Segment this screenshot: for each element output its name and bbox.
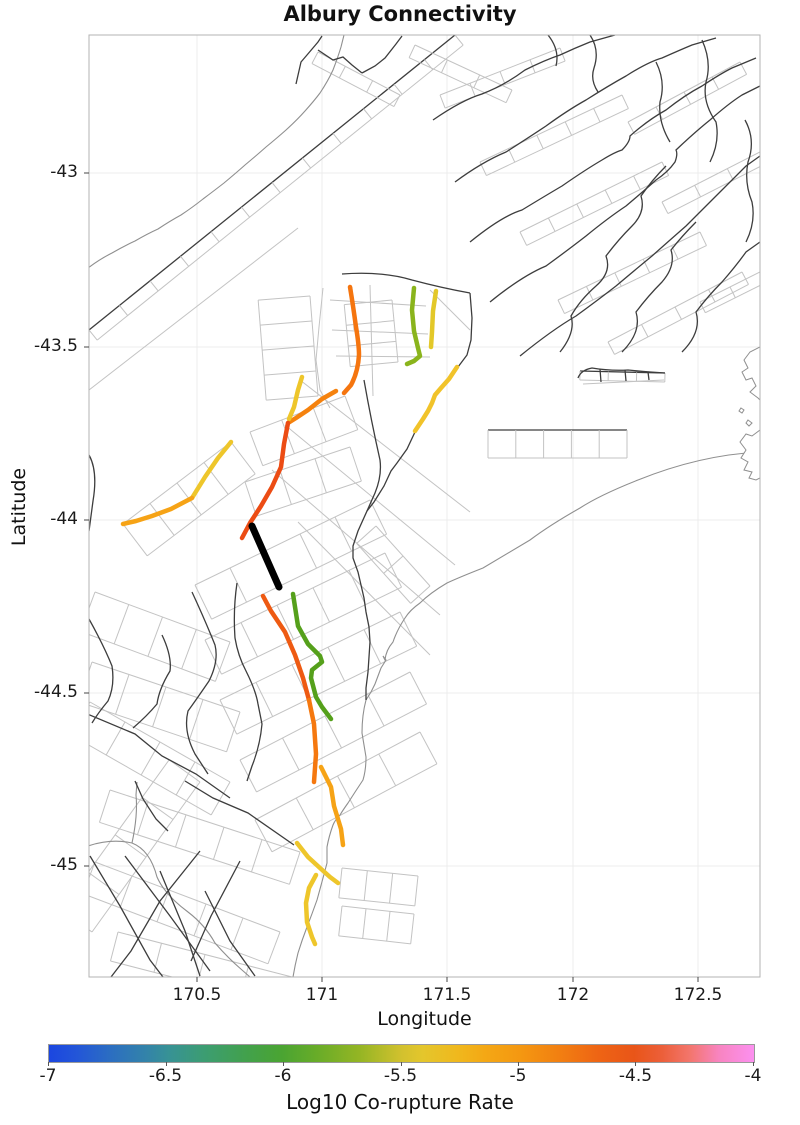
colorbar-tick-mark	[48, 1062, 49, 1066]
y-tick-label: -44.5	[14, 682, 78, 702]
y-tick-label: -43	[14, 162, 78, 182]
colorbar-tick-mark	[283, 1062, 284, 1066]
x-tick-label: 170.5	[162, 985, 232, 1005]
y-tick-label: -45	[14, 855, 78, 875]
colorbar-tick-mark	[753, 1062, 754, 1066]
colorbar-tick-mark	[635, 1062, 636, 1066]
x-tick-label: 171.5	[412, 985, 482, 1005]
x-tick-label: 172	[538, 985, 608, 1005]
colorbar-tick-label: -5.5	[371, 1066, 431, 1086]
colorbar-tick-label: -4.5	[605, 1066, 665, 1086]
colorbar-tick-label: -7	[18, 1066, 78, 1086]
y-tick-label: -43.5	[14, 336, 78, 356]
colorbar-tick-label: -6.5	[136, 1066, 196, 1086]
colorbar	[48, 1044, 755, 1063]
colorbar-tick-mark	[518, 1062, 519, 1066]
colorbar-label: Log10 Co-rupture Rate	[0, 1090, 800, 1114]
map-plot	[0, 0, 800, 1125]
chart-title: Albury Connectivity	[0, 2, 800, 26]
colorbar-tick-label: -6	[253, 1066, 313, 1086]
colorbar-tick-mark	[166, 1062, 167, 1066]
y-tick-label: -44	[14, 509, 78, 529]
colorbar-tick-mark	[401, 1062, 402, 1066]
x-tick-label: 172.5	[663, 985, 733, 1005]
x-tick-label: 171	[287, 985, 357, 1005]
y-axis-label: Latitude	[8, 462, 30, 552]
figure: Albury Connectivity Longitude Latitude L…	[0, 0, 800, 1125]
colorbar-tick-label: -4	[723, 1066, 783, 1086]
x-axis-label: Longitude	[89, 1008, 760, 1030]
colorbar-tick-label: -5	[488, 1066, 548, 1086]
